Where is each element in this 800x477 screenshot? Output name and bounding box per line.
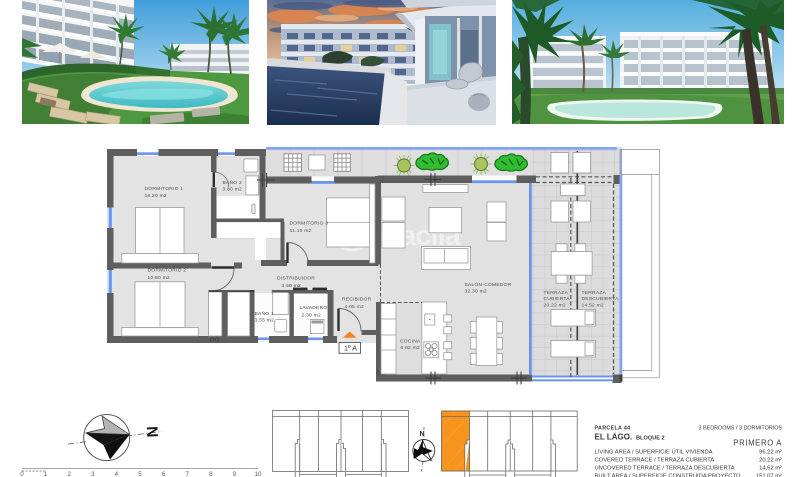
svg-text:0: 0 (20, 471, 24, 477)
svg-text:2: 2 (67, 471, 71, 477)
svg-text:18.20 m2: 18.20 m2 (145, 193, 167, 199)
svg-text:N: N (143, 426, 161, 438)
svg-text:EL LAGO.: EL LAGO. (595, 433, 633, 442)
svg-text:20.22 m2: 20.22 m2 (544, 303, 566, 309)
svg-text:PRIMERO A: PRIMERO A (733, 439, 782, 448)
svg-text:CUBIERTA: CUBIERTA (544, 296, 571, 302)
svg-text:8: 8 (209, 471, 213, 477)
svg-text:PARCELA 44: PARCELA 44 (595, 426, 631, 432)
svg-text:20.22 m²: 20.22 m² (759, 458, 782, 464)
svg-text:14.52 m2: 14.52 m2 (582, 303, 604, 309)
svg-text:5: 5 (138, 471, 142, 477)
svg-text:11.10 m2: 11.10 m2 (290, 228, 312, 234)
svg-text:151,07 m²: 151,07 m² (756, 474, 782, 477)
svg-text:BLOQUE 2: BLOQUE 2 (636, 436, 665, 442)
svg-text:3 BEDROOMS / 3 DORMITORIOS: 3 BEDROOMS / 3 DORMITORIOS (699, 426, 783, 432)
svg-text:9: 9 (233, 471, 237, 477)
svg-text:COVERED TERRACE / TERRAZA CUBI: COVERED TERRACE / TERRAZA CUBIERTA (595, 458, 715, 464)
svg-text:3.55 m2: 3.55 m2 (255, 318, 274, 324)
svg-text:6: 6 (162, 471, 166, 477)
svg-text:DORMITORIO 3: DORMITORIO 3 (290, 221, 329, 227)
svg-text:32.30 m2: 32.30 m2 (465, 289, 487, 295)
svg-text:DISTRIBUIDOR: DISTRIBUIDOR (277, 276, 315, 282)
svg-text:LIVING AREA / SUPERFICIE ÚTIL: LIVING AREA / SUPERFICIE ÚTIL VIVIENDA (595, 449, 713, 456)
svg-text:UNCOVERED TERRACE / TERRAZA DE: UNCOVERED TERRACE / TERRAZA DESCUBIERTA (595, 466, 735, 472)
svg-text:DORMITORIO 1: DORMITORIO 1 (145, 186, 184, 192)
svg-text:3.80 m2: 3.80 m2 (223, 187, 242, 193)
svg-text:1: 1 (44, 471, 48, 477)
svg-text:TERRAZA: TERRAZA (582, 290, 607, 296)
svg-text:7: 7 (185, 471, 189, 477)
svg-text:1º A: 1º A (344, 344, 357, 353)
svg-text:10.80 m2: 10.80 m2 (148, 275, 170, 281)
svg-text:RECIBIDOR: RECIBIDOR (342, 297, 372, 303)
svg-text:COCINA: COCINA (400, 339, 421, 345)
svg-text:4: 4 (115, 471, 119, 477)
svg-text:3: 3 (91, 471, 95, 477)
svg-text:BUILT AREA / SUPERFICIE CONSTR: BUILT AREA / SUPERFICIE CONSTRUIDA PROYE… (595, 474, 741, 477)
svg-text:TERRAZA: TERRAZA (544, 290, 569, 296)
svg-text:3.50 m2: 3.50 m2 (282, 283, 301, 289)
svg-text:DORMITORIO 2: DORMITORIO 2 (148, 268, 187, 274)
svg-text:4.05 m2: 4.05 m2 (345, 304, 364, 310)
svg-text:LAVADERO: LAVADERO (300, 305, 328, 311)
svg-text:96.22 m²: 96.22 m² (759, 450, 782, 456)
svg-text:14,52 m²: 14,52 m² (759, 466, 782, 472)
svg-text:2.30 m2: 2.30 m2 (302, 313, 321, 319)
svg-text:DESCUBIERTA: DESCUBIERTA (582, 296, 620, 302)
svg-text:6.62 m2: 6.62 m2 (401, 345, 420, 351)
svg-text:10: 10 (255, 471, 262, 477)
